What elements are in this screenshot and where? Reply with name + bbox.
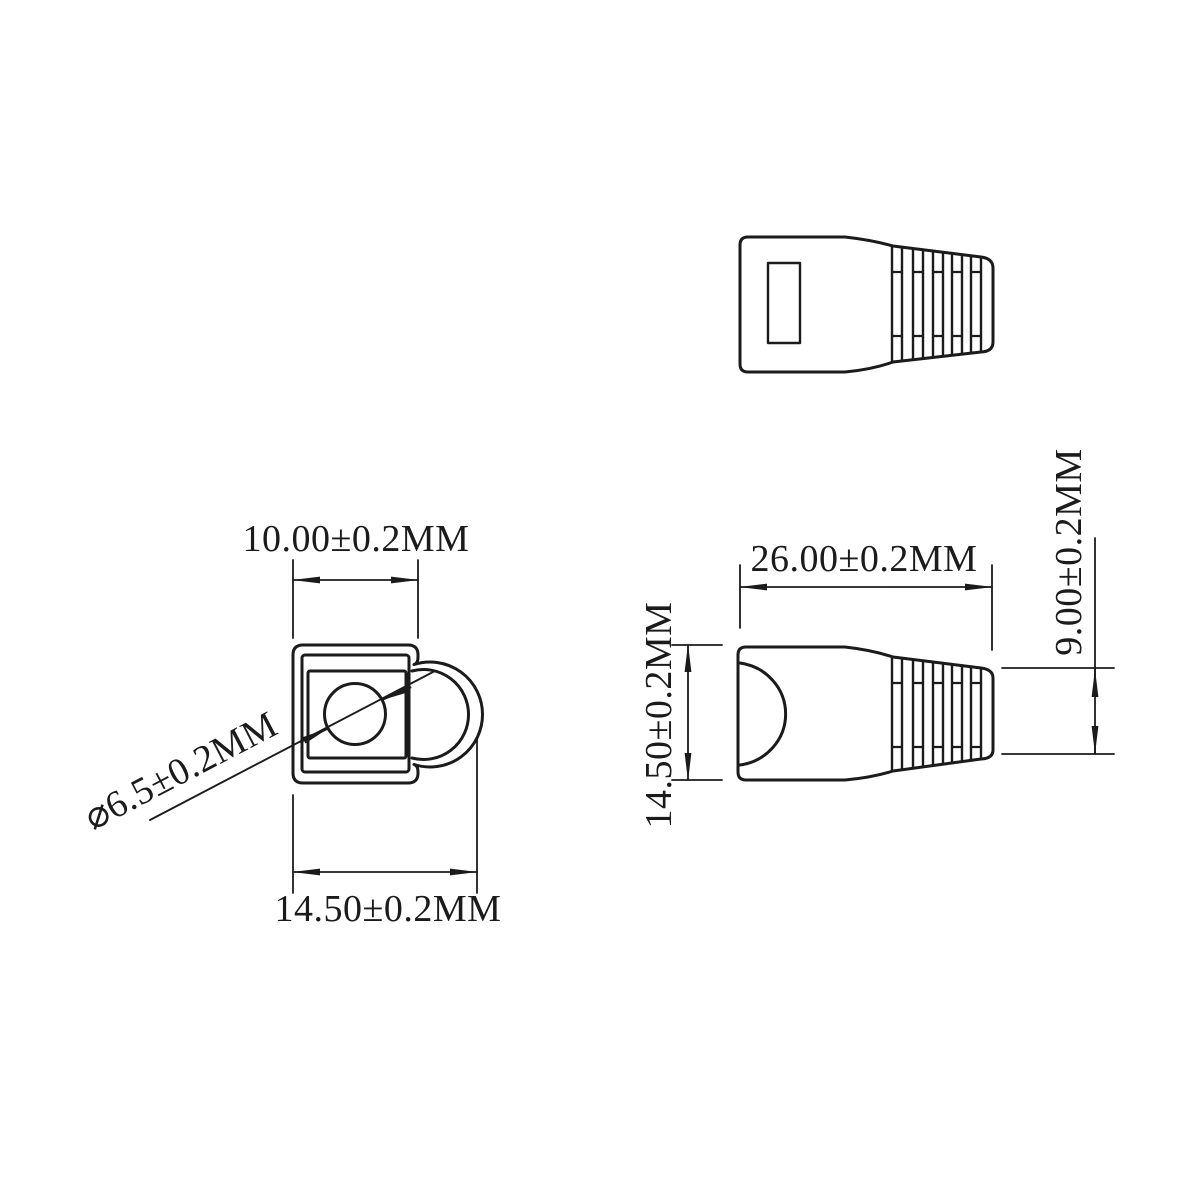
top-view-outline — [740, 237, 993, 372]
top-view — [740, 237, 993, 372]
side-view — [738, 647, 993, 780]
dim-label-tail-height: 9.00±0.2MM — [1050, 448, 1088, 655]
extension-lines-front-width — [293, 560, 418, 638]
dim-label-front-square-width: 10.00±0.2MM — [243, 520, 470, 558]
front-view — [293, 645, 483, 783]
leader-arrow-lower — [301, 729, 329, 743]
dim-label-front-overall-width: 14.50±0.2MM — [275, 890, 502, 928]
front-view-dimensions — [150, 560, 477, 893]
dim-label-side-height: 14.50±0.2MM — [640, 602, 678, 829]
top-view-ribs — [892, 246, 981, 362]
extension-lines-front-overall-width — [293, 738, 477, 893]
extension-lines-tail-height — [1002, 668, 1114, 754]
side-view-ribs — [892, 657, 981, 771]
front-view-latch-bump-inner-arc — [412, 670, 469, 760]
side-view-opening-arc — [740, 663, 786, 765]
technical-drawing-sheet: 10.00±0.2MM 14.50±0.2MM ⌀6.5±0.2MM 26.00… — [0, 0, 1200, 1200]
side-view-outline — [738, 647, 993, 780]
top-view-rib-ticks — [892, 272, 981, 336]
front-view-body-outline — [293, 645, 483, 783]
front-view-cable-hole — [325, 684, 386, 745]
dim-label-side-length: 26.00±0.2MM — [751, 540, 978, 578]
top-view-cable-slot — [768, 263, 800, 343]
drawing-canvas — [0, 0, 1200, 1200]
side-view-rib-ticks — [892, 683, 981, 747]
